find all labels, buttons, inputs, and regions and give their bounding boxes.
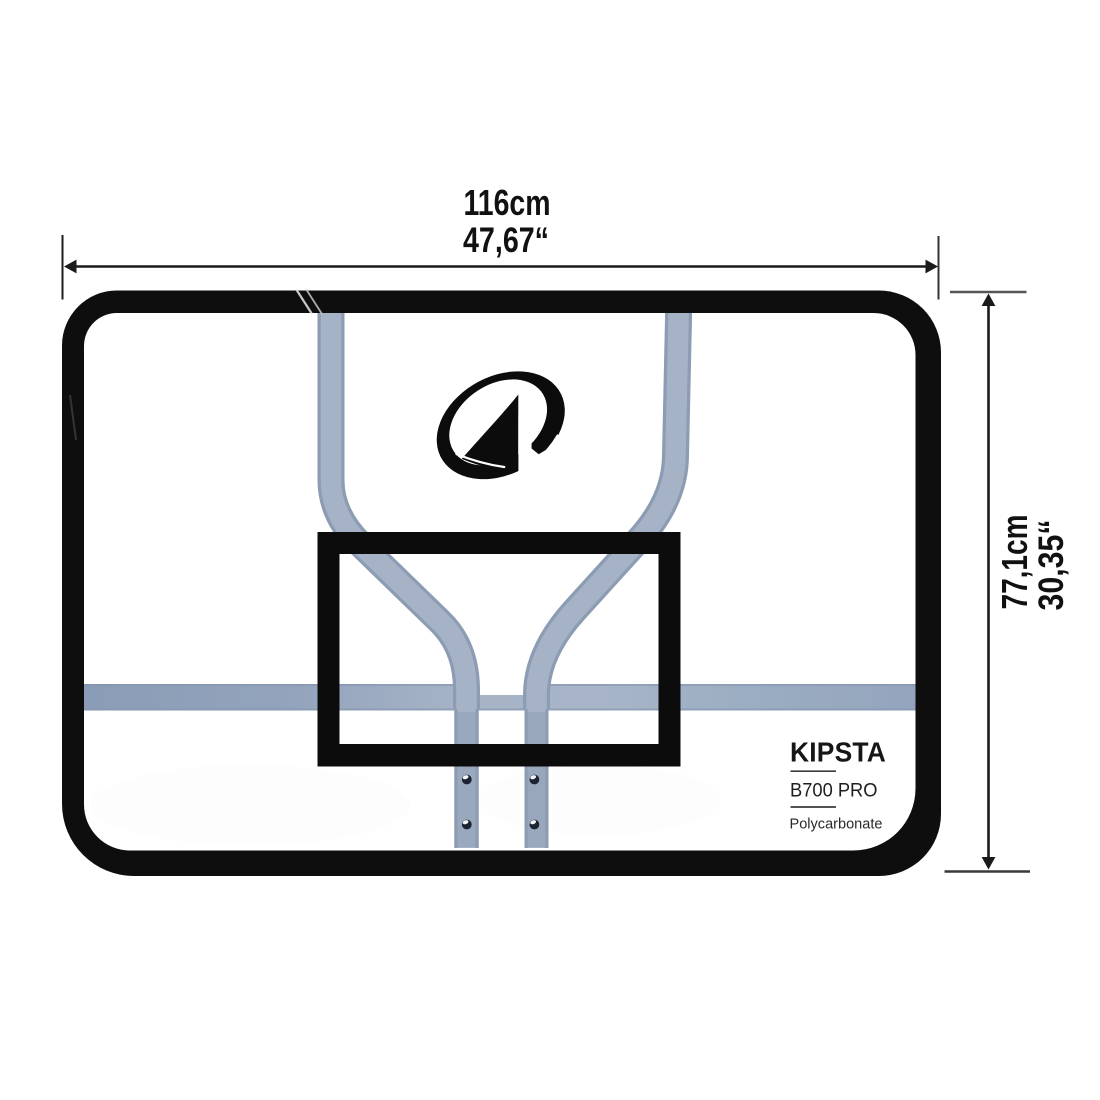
svg-text:B700 PRO: B700 PRO bbox=[790, 781, 878, 802]
svg-text:KIPSTA: KIPSTA bbox=[790, 737, 886, 768]
svg-text:77,1cm: 77,1cm bbox=[994, 515, 1035, 610]
svg-text:30,35“: 30,35“ bbox=[1032, 520, 1071, 611]
svg-text:116cm: 116cm bbox=[464, 182, 551, 223]
svg-text:47,67“: 47,67“ bbox=[463, 221, 549, 260]
svg-text:Polycarbonate: Polycarbonate bbox=[790, 817, 883, 833]
